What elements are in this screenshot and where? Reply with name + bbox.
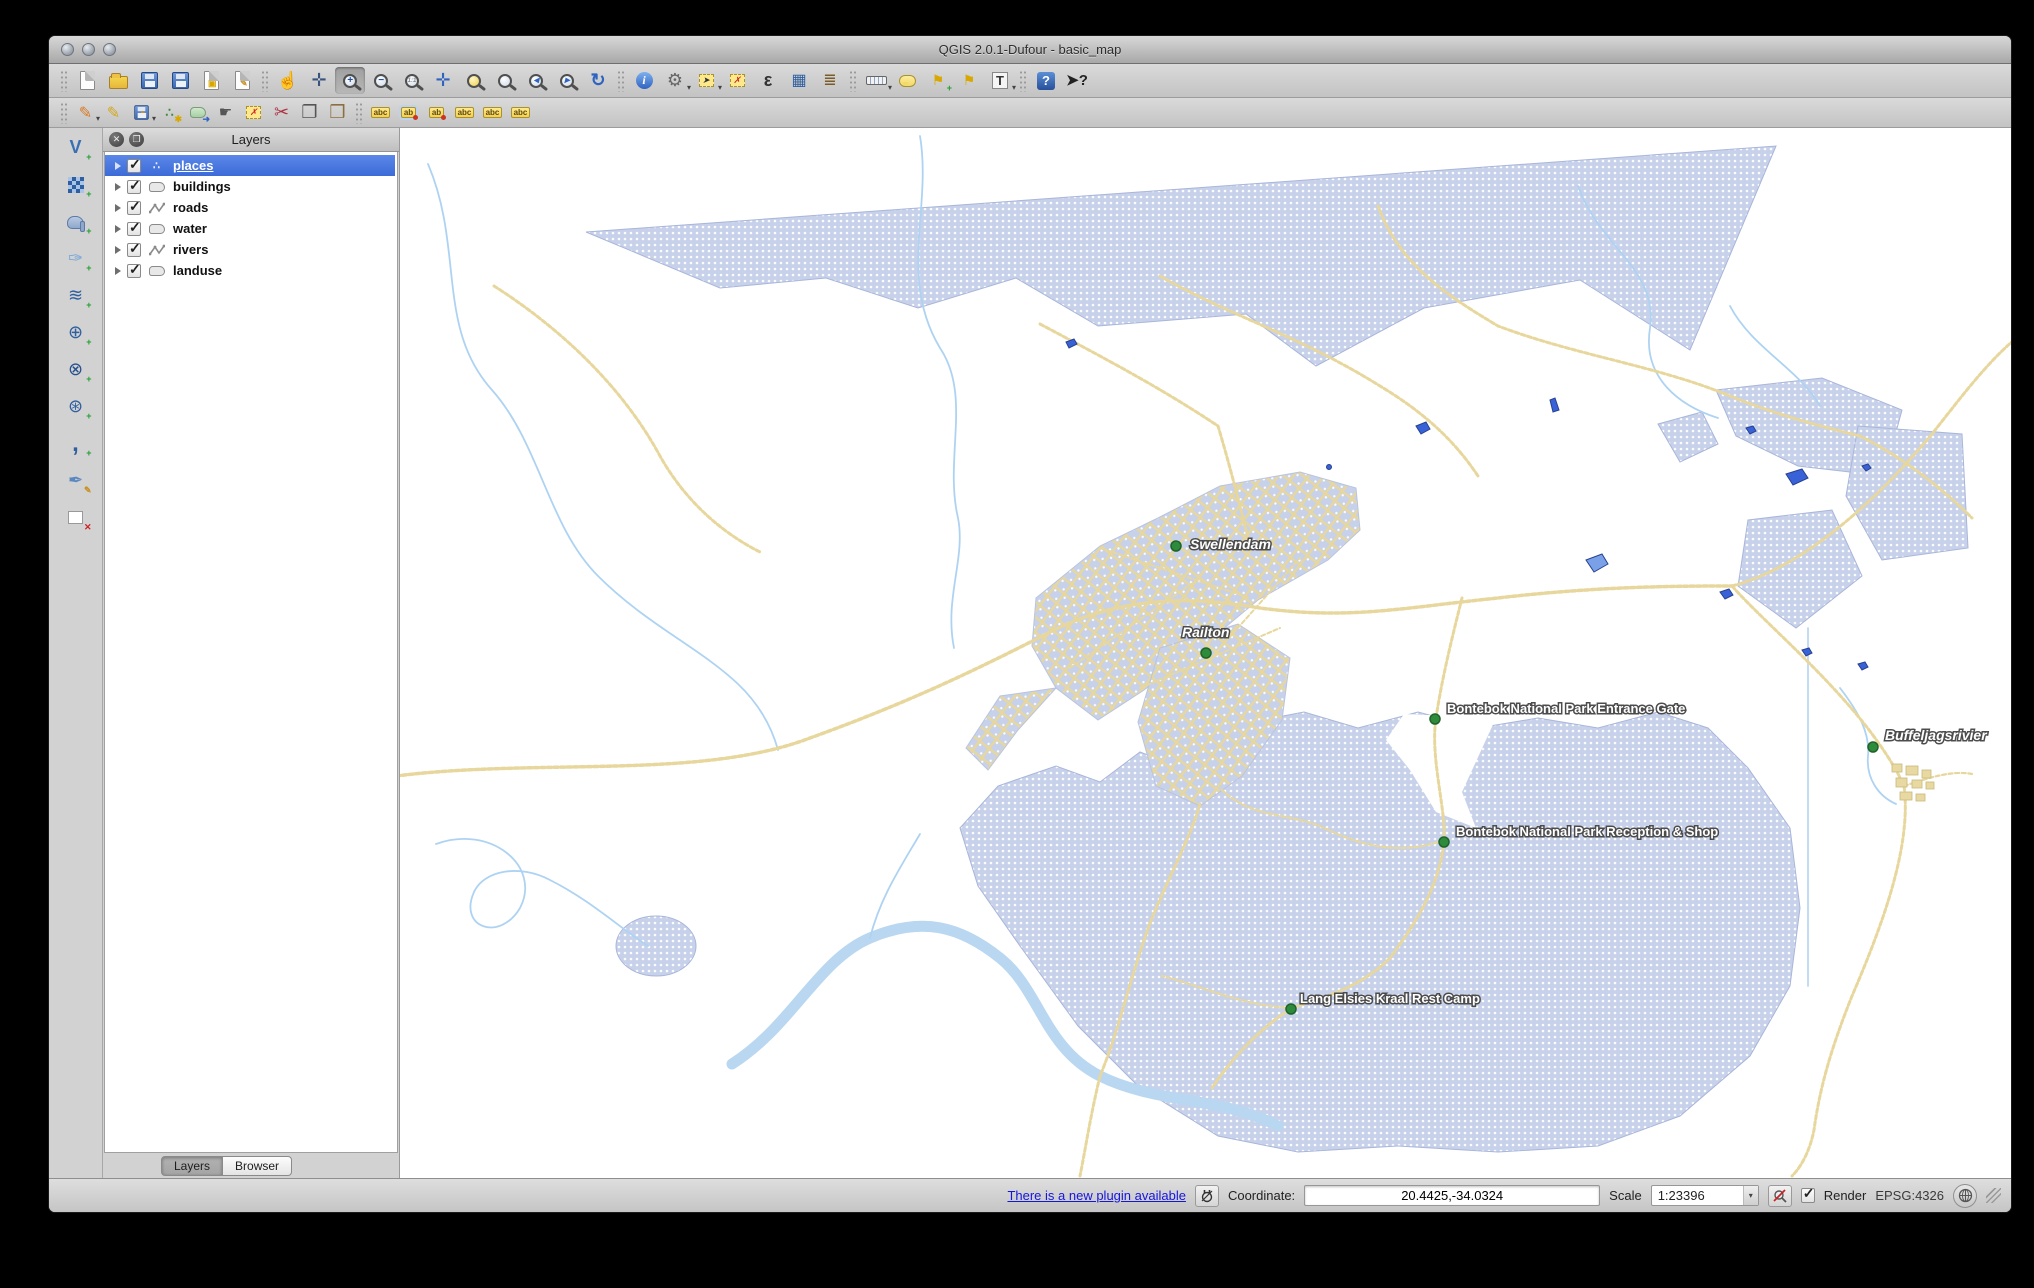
zoom-selection-icon: [467, 74, 481, 88]
place-label: Railton: [1182, 624, 1229, 640]
abacus-icon: ≣: [823, 73, 836, 89]
label-change-button[interactable]: abc: [479, 101, 506, 125]
move-feature-button[interactable]: ➜: [184, 101, 211, 125]
raster-layer-icon: [68, 177, 84, 193]
new-project-button[interactable]: [72, 67, 102, 94]
add-delimited-text-layer-button[interactable]: ,+: [59, 428, 93, 459]
label-properties-button[interactable]: abc: [507, 101, 534, 125]
measure-button[interactable]: ▾: [861, 67, 891, 94]
add-feature-button[interactable]: ∴✱: [156, 101, 183, 125]
save-project-button[interactable]: [134, 67, 164, 94]
postgis-elephant-icon: [67, 216, 84, 229]
copy-icon: ❐: [301, 105, 317, 120]
composer-manager-button[interactable]: ✎: [227, 67, 257, 94]
place-marker-railton: [1201, 648, 1211, 658]
main-toolbar: + ▣ ✎ ☝ ✛ + − 1:1 ✛ ◂ ▸ ↻ i ⚙▾ ➤▾ ✗ ε ▦ …: [49, 64, 2011, 98]
refresh-button[interactable]: ↻: [583, 67, 613, 94]
label-change-icon: abc: [483, 107, 503, 118]
manage-layers-toolbar: V+ + + ✑+ ≋+ ⊕+ ⊗+ ⊛+ ,+ ✒✎ ✕: [49, 128, 103, 1178]
layer-label: roads: [173, 200, 208, 215]
layer-label: places: [173, 158, 213, 173]
label-pin-button[interactable]: ab: [395, 101, 422, 125]
save-edits-icon: ✎: [134, 105, 148, 119]
new-shapefile-icon: ✒: [68, 473, 83, 488]
layers-panel-header[interactable]: ✕ ❐ Layers: [103, 128, 399, 152]
place-marker-swellendam: [1171, 541, 1181, 551]
zoom-full-icon: ✛: [435, 73, 450, 88]
label-move-button[interactable]: ab: [423, 101, 450, 125]
whats-this-button[interactable]: ➤?: [1062, 67, 1092, 94]
layer-checkbox[interactable]: [127, 264, 141, 278]
add-postgis-layer-button[interactable]: +: [59, 206, 93, 237]
copy-features-button[interactable]: ❐: [296, 101, 323, 125]
labeling-options-button[interactable]: abc: [367, 101, 394, 125]
toolbar-drag-handle[interactable]: [617, 70, 625, 92]
label-move-icon: ab: [429, 107, 444, 118]
speech-bubble-icon: [899, 75, 916, 87]
new-shapefile-layer-button[interactable]: ✒✎: [59, 465, 93, 496]
zoom-last-button[interactable]: ◂: [521, 67, 551, 94]
plug-icon: [1200, 1189, 1214, 1203]
place-label: Lang Elsies Kraal Rest Camp: [1300, 991, 1480, 1006]
layer-checkbox[interactable]: [127, 243, 141, 257]
abc-label-icon: abc: [371, 107, 391, 118]
coordinate-label: Coordinate:: [1228, 1188, 1295, 1203]
place-marker-buffeljagsrivier: [1868, 742, 1878, 752]
layer-label: landuse: [173, 263, 222, 278]
plugin-update-link[interactable]: There is a new plugin available: [1007, 1188, 1186, 1203]
epsilon-icon: ε: [764, 73, 773, 88]
map-render: Swellendam Railton Bontebok National Par…: [400, 128, 2011, 1178]
vector-layer-icon: V: [69, 140, 81, 155]
expand-arrow-icon[interactable]: [115, 267, 121, 275]
deselect-features-button[interactable]: ✗: [722, 67, 752, 94]
toolbar-drag-handle[interactable]: [849, 70, 857, 92]
stop-render-button[interactable]: [1768, 1185, 1792, 1207]
add-vector-layer-button[interactable]: V+: [59, 132, 93, 163]
crs-globe-icon: [1958, 1188, 1973, 1203]
whats-this-icon: ➤?: [1066, 73, 1088, 88]
add-feature-icon: ∴: [165, 105, 173, 121]
toolbar-drag-handle[interactable]: [60, 102, 68, 124]
scale-combo[interactable]: 1:23396 ▾: [1651, 1185, 1759, 1206]
wms-globe-icon: ⊕: [68, 325, 83, 340]
save-layer-edits-button[interactable]: ✎▾: [128, 101, 155, 125]
layers-panel: ✕ ❐ Layers ∴ places buildings: [103, 128, 399, 1178]
open-project-button[interactable]: [103, 67, 133, 94]
chevron-down-icon: ▾: [1743, 1186, 1758, 1205]
add-wfs-layer-button[interactable]: ⊛+: [59, 391, 93, 422]
cut-features-button[interactable]: ✂: [268, 101, 295, 125]
label-pin-icon: ab: [401, 107, 416, 118]
layer-row-water[interactable]: water: [105, 218, 397, 239]
layers-panel-title: Layers: [231, 132, 270, 147]
toolbar-drag-handle[interactable]: [1019, 70, 1027, 92]
layer-label: buildings: [173, 179, 231, 194]
layer-row-roads[interactable]: roads: [105, 197, 397, 218]
pencil-icon: ✎: [107, 103, 120, 123]
zoom-native-icon: 1:1: [405, 74, 419, 88]
buildings-layer: [1892, 764, 1934, 801]
open-project-icon: [109, 76, 128, 89]
new-bookmark-button[interactable]: ⚑+: [923, 67, 953, 94]
layer-row-rivers[interactable]: rivers: [105, 239, 397, 260]
current-edits-button[interactable]: ✎▾: [72, 101, 99, 125]
zoom-in-icon: +: [343, 74, 357, 88]
layer-checkbox[interactable]: [127, 222, 141, 236]
select-by-expression-button[interactable]: ε: [753, 67, 783, 94]
panel-float-button[interactable]: ❐: [129, 132, 144, 147]
zoom-window-button[interactable]: [103, 43, 116, 56]
window-title: QGIS 2.0.1-Dufour - basic_map: [939, 42, 1122, 57]
wfs-globe-icon: ⊛: [68, 399, 83, 414]
comma-icon: ,: [72, 437, 79, 451]
delete-selected-button[interactable]: ✗: [240, 101, 267, 125]
render-checkbox[interactable]: [1801, 1188, 1815, 1203]
resize-grip[interactable]: [1986, 1188, 2001, 1203]
zoom-out-icon: −: [374, 74, 388, 88]
place-label: Buffeljagsrivier: [1885, 727, 1988, 743]
toolbar-drag-handle[interactable]: [60, 70, 68, 92]
tab-browser[interactable]: Browser: [223, 1156, 292, 1176]
zoom-next-button[interactable]: ▸: [552, 67, 582, 94]
wcs-globe-icon: ⊗: [68, 362, 83, 377]
mssql-icon: ≋: [68, 288, 83, 303]
add-mssql-layer-button[interactable]: ≋+: [59, 280, 93, 311]
save-project-as-button[interactable]: +: [165, 67, 195, 94]
layer-label: water: [173, 221, 207, 236]
scissors-icon: ✂: [274, 105, 289, 120]
paste-features-button[interactable]: ❒: [324, 101, 351, 125]
stop-render-icon: [1773, 1189, 1787, 1203]
zoom-last-icon: ◂: [529, 74, 543, 88]
place-marker-entrance-gate: [1430, 714, 1440, 724]
layer-row-buildings[interactable]: buildings: [105, 176, 397, 197]
crs-status-text: EPSG:4326: [1875, 1188, 1944, 1203]
place-marker-rest-camp: [1286, 1004, 1296, 1014]
add-wcs-layer-button[interactable]: ⊗+: [59, 354, 93, 385]
show-bookmarks-button[interactable]: ⚑: [954, 67, 984, 94]
new-print-composer-button[interactable]: ▣: [196, 67, 226, 94]
label-rotate-button[interactable]: abc: [451, 101, 478, 125]
layer-row-landuse[interactable]: landuse: [105, 260, 397, 281]
text-annotation-button[interactable]: T▾: [985, 67, 1015, 94]
minimize-window-button[interactable]: [82, 43, 95, 56]
traffic-lights: [61, 43, 116, 56]
expand-arrow-icon[interactable]: [115, 162, 121, 170]
map-tips-button[interactable]: [892, 67, 922, 94]
place-label: Bontebok National Park Reception & Shop: [1456, 824, 1718, 839]
add-spatialite-layer-button[interactable]: ✑+: [59, 243, 93, 274]
expand-arrow-icon[interactable]: [115, 225, 121, 233]
deselect-icon: ✗: [730, 74, 745, 87]
close-window-button[interactable]: [61, 43, 74, 56]
add-wms-layer-button[interactable]: ⊕+: [59, 317, 93, 348]
ruler-icon: [866, 76, 887, 85]
coordinate-input[interactable]: [1304, 1185, 1600, 1206]
toggle-editing-button[interactable]: ✎: [100, 101, 127, 125]
line-geometry-icon: [147, 244, 167, 256]
scale-value: 1:23396: [1652, 1188, 1743, 1203]
polygon-geometry-icon: [147, 266, 167, 276]
spatialite-feather-icon: ✑: [68, 251, 83, 266]
pan-map-button[interactable]: ☝: [273, 67, 303, 94]
crs-button[interactable]: [1953, 1184, 1977, 1208]
help-button[interactable]: ?: [1031, 67, 1061, 94]
polygon-geometry-icon: [147, 182, 167, 192]
refresh-icon: ↻: [590, 73, 605, 88]
place-label: Bontebok National Park Entrance Gate: [1447, 701, 1685, 716]
table-icon: ▦: [791, 73, 806, 89]
gear-icon: ⚙: [667, 73, 683, 88]
pan-to-selection-button[interactable]: ✛: [304, 67, 334, 94]
place-marker-reception: [1439, 837, 1449, 847]
select-features-button[interactable]: ➤▾: [691, 67, 721, 94]
layer-checkbox[interactable]: [127, 159, 141, 173]
remove-layer-icon: [68, 511, 83, 524]
title-bar[interactable]: QGIS 2.0.1-Dufour - basic_map: [49, 36, 2011, 64]
zoom-full-button[interactable]: ✛: [428, 67, 458, 94]
feature-action-button[interactable]: ⚙▾: [660, 67, 690, 94]
toolbar-drag-handle[interactable]: [261, 70, 269, 92]
new-composer-icon: ▣: [204, 71, 219, 90]
panel-tab-bar: Layers Browser: [103, 1153, 399, 1178]
save-as-icon: +: [172, 72, 189, 89]
zoom-native-button[interactable]: 1:1: [397, 67, 427, 94]
layer-row-places[interactable]: ∴ places: [105, 155, 395, 176]
pan-selection-icon: ✛: [311, 73, 326, 88]
layer-tree[interactable]: ∴ places buildings roads: [104, 152, 398, 1153]
zoom-to-selection-button[interactable]: [459, 67, 489, 94]
label-properties-icon: abc: [511, 107, 531, 118]
save-icon: [141, 72, 158, 89]
expand-arrow-icon[interactable]: [115, 183, 121, 191]
digitizing-toolbar: ✎▾ ✎ ✎▾ ∴✱ ➜ ☛ ✗ ✂ ❐ ❒ abc ab ab abc abc…: [49, 98, 2011, 128]
identify-icon: i: [636, 72, 653, 89]
tab-layers[interactable]: Layers: [161, 1156, 223, 1176]
toolbar-drag-handle[interactable]: [355, 102, 363, 124]
point-geometry-icon: ∴: [147, 159, 167, 172]
plugin-notification-button[interactable]: [1195, 1185, 1219, 1207]
status-bar: There is a new plugin available Coordina…: [49, 1178, 2011, 1212]
identify-button[interactable]: i: [629, 67, 659, 94]
new-project-icon: [80, 71, 95, 90]
zoom-to-layer-button[interactable]: [490, 67, 520, 94]
layer-checkbox[interactable]: [127, 180, 141, 194]
layer-label: rivers: [173, 242, 208, 257]
layer-checkbox[interactable]: [127, 201, 141, 215]
zoom-layer-icon: [498, 74, 512, 88]
map-canvas[interactable]: Swellendam Railton Bontebok National Par…: [399, 128, 2011, 1178]
add-raster-layer-button[interactable]: +: [59, 169, 93, 200]
qgis-window: QGIS 2.0.1-Dufour - basic_map + ▣ ✎ ☝ ✛ …: [49, 36, 2011, 1212]
bookmark-icon: ⚑: [963, 72, 976, 89]
field-calculator-button[interactable]: ≣: [815, 67, 845, 94]
new-bookmark-icon: ⚑: [932, 72, 945, 89]
polygon-geometry-icon: [147, 224, 167, 234]
delete-icon: ✗: [246, 106, 261, 119]
help-icon: ?: [1037, 72, 1055, 90]
current-edits-icon: ✎: [79, 103, 92, 123]
zoom-out-button[interactable]: −: [366, 67, 396, 94]
label-rotate-icon: abc: [455, 107, 475, 118]
text-annotation-icon: T: [992, 72, 1008, 89]
remove-layer-button[interactable]: ✕: [59, 502, 93, 533]
composer-manager-icon: ✎: [235, 71, 250, 90]
panel-close-button[interactable]: ✕: [109, 132, 124, 147]
attribute-table-button[interactable]: ▦: [784, 67, 814, 94]
scale-label: Scale: [1609, 1188, 1642, 1203]
zoom-in-button[interactable]: +: [335, 67, 365, 94]
pan-hand-icon: ☝: [277, 71, 298, 91]
expand-arrow-icon[interactable]: [115, 204, 121, 212]
line-geometry-icon: [147, 202, 167, 214]
node-tool-icon: ☛: [219, 105, 232, 120]
place-label: Swellendam: [1190, 536, 1271, 552]
clipboard-icon: ❒: [329, 105, 345, 120]
expand-arrow-icon[interactable]: [115, 246, 121, 254]
render-label: Render: [1824, 1188, 1867, 1203]
select-rect-icon: ➤: [699, 74, 714, 87]
node-tool-button[interactable]: ☛: [212, 101, 239, 125]
zoom-next-icon: ▸: [560, 74, 574, 88]
